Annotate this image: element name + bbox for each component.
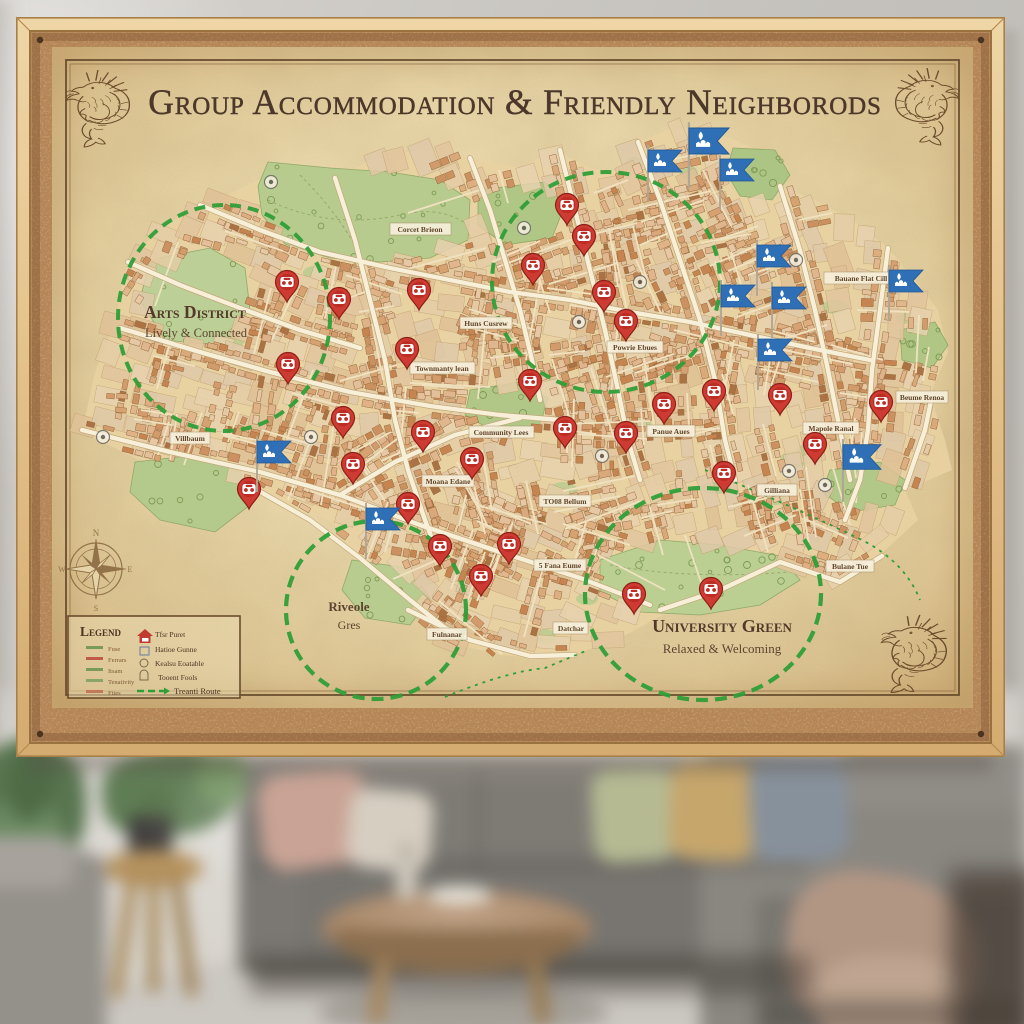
svg-text:Panue Aues: Panue Aues: [652, 427, 689, 436]
svg-text:Datchar: Datchar: [558, 624, 585, 633]
svg-text:Lively & Connected: Lively & Connected: [145, 326, 248, 340]
svg-text:Tenativity: Tenativity: [108, 679, 135, 686]
svg-text:Riveole: Riveole: [328, 599, 369, 614]
svg-text:Beume Renoa: Beume Renoa: [900, 393, 945, 402]
svg-text:Corcet Brieon: Corcet Brieon: [397, 225, 443, 234]
svg-text:Ferrars: Ferrars: [108, 657, 127, 664]
svg-text:Itsam: Itsam: [108, 668, 122, 675]
svg-text:University Green: University Green: [652, 616, 792, 636]
svg-text:5 Fana Eume: 5 Fana Eume: [539, 561, 582, 570]
svg-text:Moana Edane: Moana Edane: [426, 477, 471, 486]
svg-text:Bulane Tue: Bulane Tue: [832, 562, 869, 571]
svg-text:W: W: [58, 565, 66, 574]
svg-text:Gres: Gres: [338, 618, 361, 632]
svg-text:Tfsr Puret: Tfsr Puret: [155, 630, 186, 639]
svg-text:Huns Cusrew: Huns Cusrew: [464, 319, 508, 328]
svg-text:Treanti Route: Treanti Route: [174, 686, 221, 696]
svg-text:Fulnanar: Fulnanar: [432, 630, 463, 639]
svg-text:S: S: [94, 604, 98, 613]
svg-text:Relaxed & Welcoming: Relaxed & Welcoming: [663, 641, 782, 656]
svg-text:Group Accommodation & Friendly: Group Accommodation & Friendly Neighboro…: [148, 82, 881, 122]
svg-text:Mapole Ranal: Mapole Ranal: [808, 424, 853, 433]
svg-text:Tooent Fools: Tooent Fools: [158, 673, 197, 682]
svg-text:Powrie Ebues: Powrie Ebues: [613, 343, 657, 352]
svg-text:Fties: Fties: [108, 690, 121, 697]
svg-text:Villbaum: Villbaum: [175, 434, 205, 443]
svg-text:Kealsu Eoatable: Kealsu Eoatable: [155, 659, 205, 668]
svg-text:Legend: Legend: [80, 624, 122, 639]
svg-text:Townmanty lean: Townmanty lean: [415, 364, 469, 373]
svg-text:TO08 Bellum: TO08 Bellum: [544, 497, 588, 506]
svg-text:E: E: [128, 565, 133, 574]
svg-text:Hatioe Gunne: Hatioe Gunne: [155, 645, 198, 654]
svg-text:Community Lees: Community Lees: [474, 428, 529, 437]
svg-text:Gilliana: Gilliana: [764, 486, 790, 495]
svg-text:N: N: [93, 528, 100, 538]
svg-text:Fuse: Fuse: [108, 646, 120, 653]
svg-text:Arts District: Arts District: [144, 302, 246, 322]
svg-text:Bauane Flat Cill: Bauane Flat Cill: [835, 274, 888, 283]
